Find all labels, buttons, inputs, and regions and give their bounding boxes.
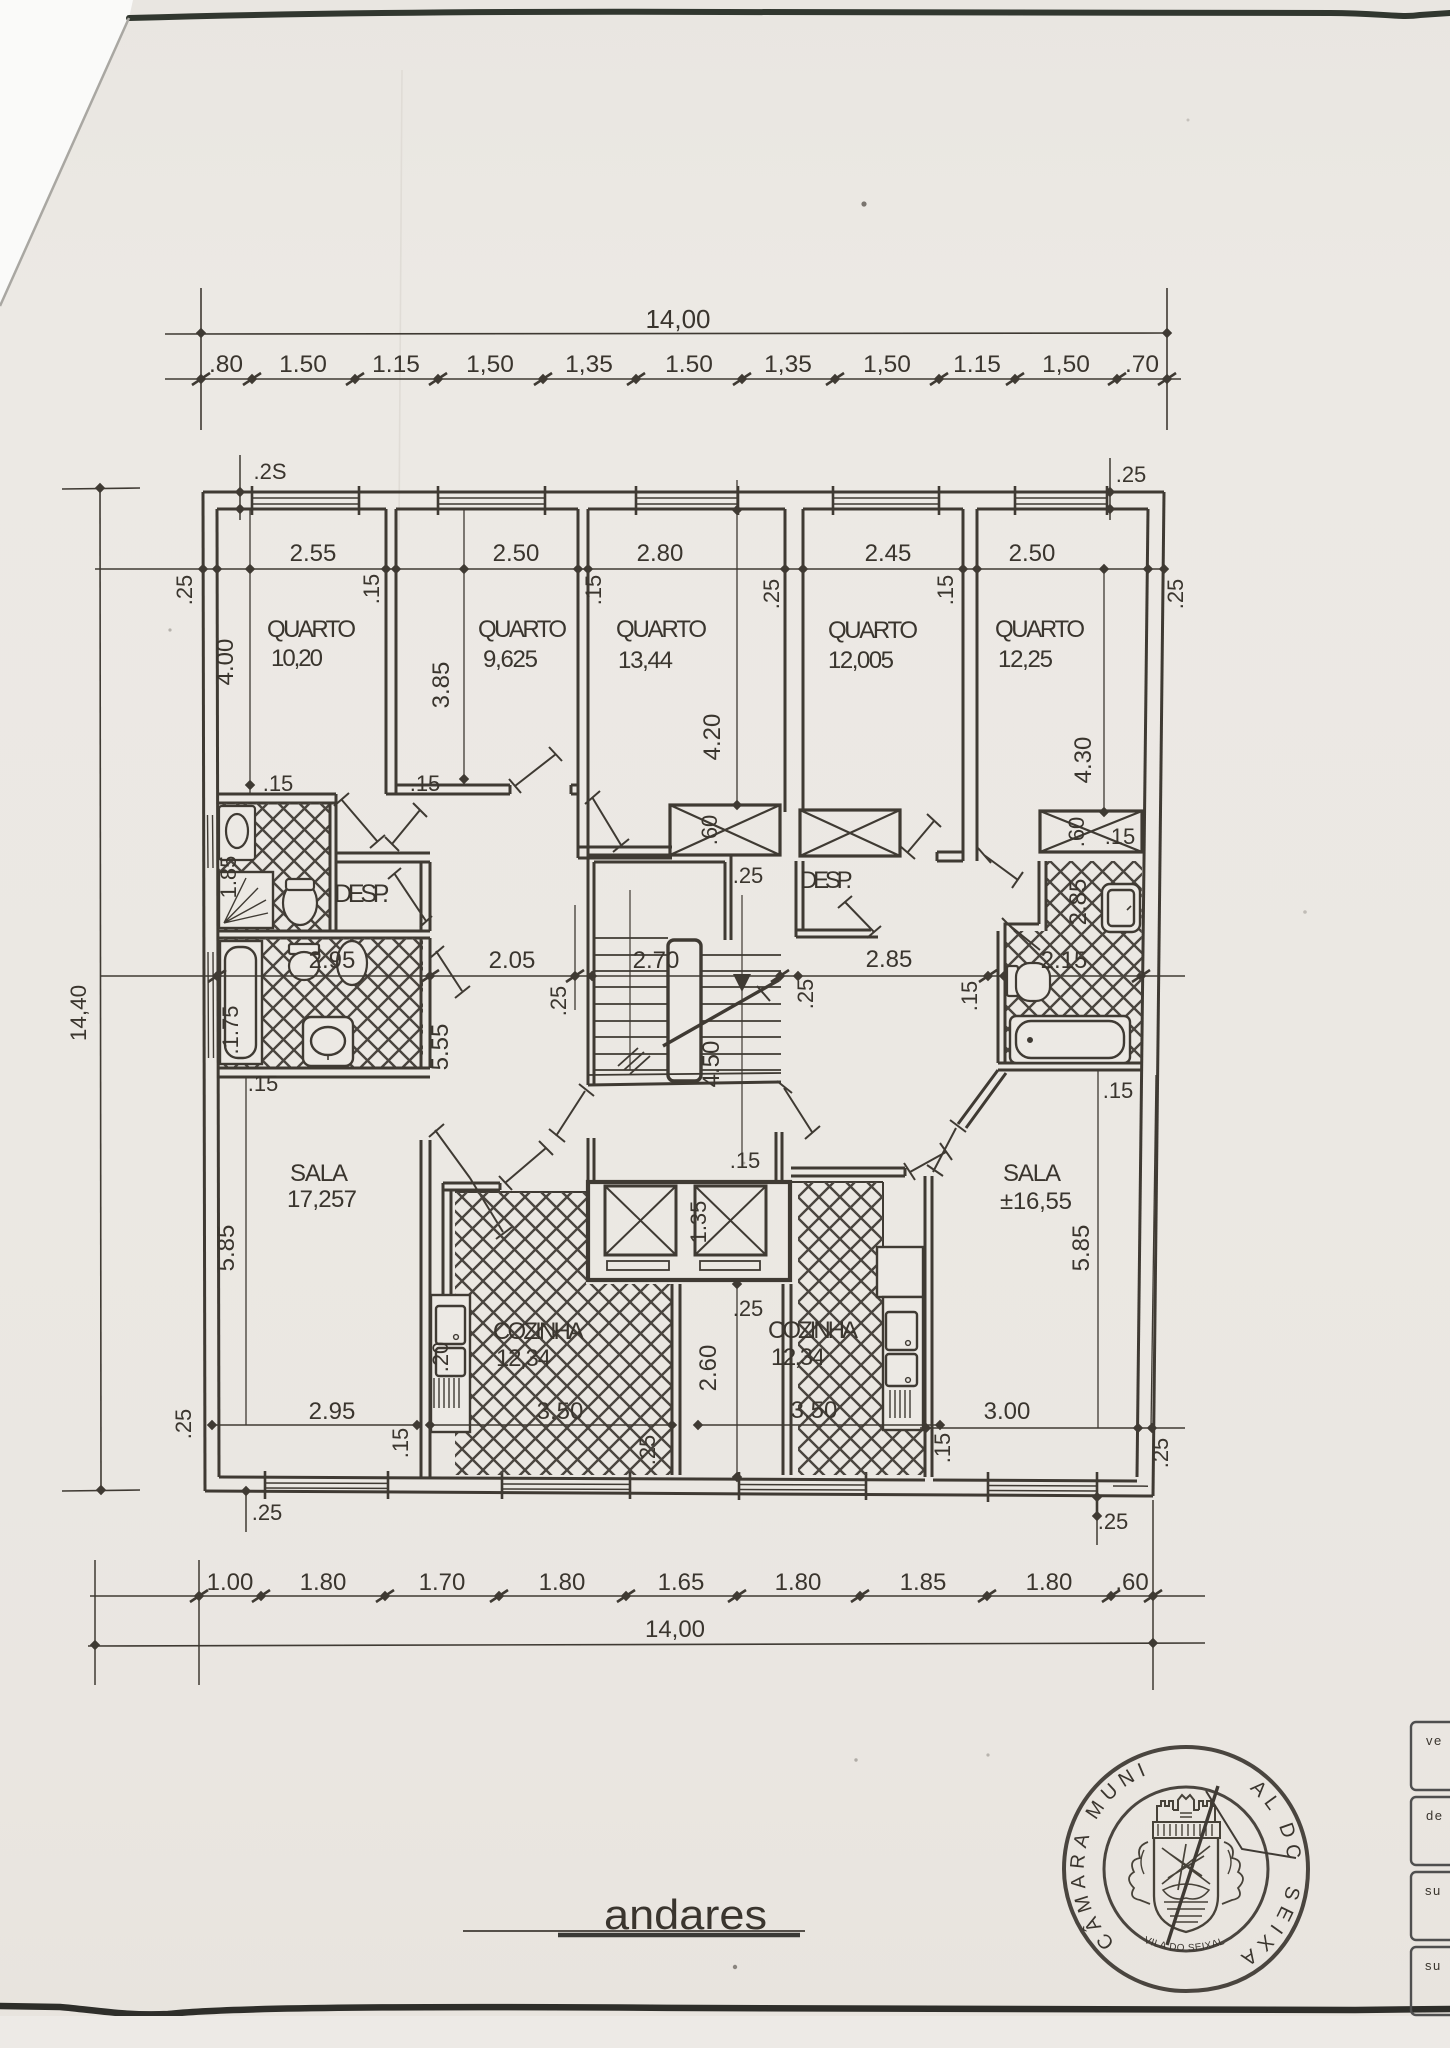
svg-text:1.50: 1.50 <box>279 351 327 378</box>
svg-text:1.65: 1.65 <box>658 1569 705 1596</box>
svg-text:14,00: 14,00 <box>645 1616 705 1643</box>
svg-text:3.50: 3.50 <box>791 1397 838 1424</box>
svg-text:.25: .25 <box>733 863 764 888</box>
svg-text:12,34: 12,34 <box>496 1345 551 1372</box>
svg-text:QUARTO: QUARTO <box>616 616 707 643</box>
svg-text:2.50: 2.50 <box>493 540 540 567</box>
svg-text:.2S: .2S <box>253 459 286 484</box>
svg-text:12,34: 12,34 <box>771 1344 825 1371</box>
svg-text:2.85: 2.85 <box>866 946 913 973</box>
svg-text:.25: .25 <box>1098 1509 1129 1534</box>
svg-text:.15: .15 <box>930 1433 955 1464</box>
svg-text:4.50: 4.50 <box>698 1041 725 1088</box>
svg-text:.25: .25 <box>733 1296 764 1321</box>
svg-text:2.80: 2.80 <box>637 540 684 567</box>
svg-text:12,005: 12,005 <box>828 647 894 674</box>
svg-text:1.80: 1.80 <box>539 1569 586 1596</box>
svg-text:4.00: 4.00 <box>212 639 239 686</box>
svg-text:1.00: 1.00 <box>207 1569 254 1596</box>
svg-text:1,35: 1,35 <box>565 351 613 378</box>
svg-text:9,625: 9,625 <box>483 646 538 673</box>
svg-text:.70: .70 <box>1125 351 1159 378</box>
svg-text:2.95: 2.95 <box>309 947 356 974</box>
svg-text:COZINHA: COZINHA <box>493 1318 584 1345</box>
svg-text:.15: .15 <box>1103 1078 1134 1103</box>
svg-text:.15: .15 <box>248 1071 279 1096</box>
svg-text:de: de <box>1426 1808 1443 1823</box>
svg-text:1.50: 1.50 <box>665 351 713 378</box>
svg-text:1.85: 1.85 <box>216 856 241 899</box>
svg-text:su: su <box>1425 1883 1442 1898</box>
svg-text:.15: .15 <box>581 575 606 606</box>
svg-text:.25: .25 <box>759 579 784 610</box>
svg-text:14,00: 14,00 <box>645 304 710 334</box>
svg-text:QUARTO: QUARTO <box>828 617 918 644</box>
svg-text:2.85: 2.85 <box>1065 879 1092 926</box>
svg-text:10,20: 10,20 <box>271 645 323 672</box>
svg-text:.15: .15 <box>957 981 982 1012</box>
svg-text:1.15: 1.15 <box>953 351 1001 378</box>
svg-text:3.85: 3.85 <box>428 662 455 709</box>
svg-text:.60: .60 <box>697 815 722 846</box>
svg-text:2.50: 2.50 <box>1009 540 1056 567</box>
svg-text:QUARTO: QUARTO <box>995 616 1085 643</box>
svg-text:.15: .15 <box>359 574 384 605</box>
svg-text:.25: .25 <box>171 1409 196 1440</box>
svg-text:.25: .25 <box>546 986 571 1017</box>
svg-text:1.80: 1.80 <box>775 1569 822 1596</box>
svg-text:1,35: 1,35 <box>764 351 812 378</box>
svg-text:5.55: 5.55 <box>427 1024 454 1071</box>
svg-text:.1.75: .1.75 <box>218 1006 243 1055</box>
svg-text:.25: .25 <box>793 979 818 1010</box>
svg-text:1,50: 1,50 <box>1042 351 1090 378</box>
svg-text:.15: .15 <box>933 575 958 606</box>
svg-text:3.50: 3.50 <box>537 1398 584 1425</box>
svg-text:.15: .15 <box>730 1148 761 1173</box>
svg-text:2.05: 2.05 <box>489 947 536 974</box>
svg-text:.25: .25 <box>1148 1438 1173 1469</box>
svg-text:1,50: 1,50 <box>466 351 514 378</box>
svg-text:1.80: 1.80 <box>300 1569 347 1596</box>
svg-text:2.45: 2.45 <box>865 540 912 567</box>
svg-text:13,44: 13,44 <box>618 647 673 674</box>
svg-text:.20: .20 <box>428 1342 453 1373</box>
svg-text:±16,55: ±16,55 <box>1000 1188 1072 1215</box>
svg-text:.25: .25 <box>172 575 197 606</box>
svg-text:.80: .80 <box>209 351 243 378</box>
svg-text:3.00: 3.00 <box>984 1398 1031 1425</box>
svg-text:.15: .15 <box>410 771 441 796</box>
svg-text:su: su <box>1425 1958 1442 1973</box>
svg-text:.60: .60 <box>1115 1569 1148 1596</box>
svg-text:COZINHA: COZINHA <box>768 1317 858 1344</box>
svg-text:.25: .25 <box>635 1435 660 1466</box>
svg-text:1.35: 1.35 <box>686 1201 711 1244</box>
svg-text:DESP.: DESP. <box>334 880 389 908</box>
svg-text:12,25: 12,25 <box>998 646 1053 673</box>
svg-text:5.85: 5.85 <box>1068 1225 1095 1272</box>
svg-text:2.55: 2.55 <box>290 540 337 567</box>
svg-text:DESP.: DESP. <box>800 867 852 894</box>
svg-text:17,257: 17,257 <box>287 1186 357 1213</box>
svg-text:1.15: 1.15 <box>372 351 420 378</box>
svg-text:.25: .25 <box>1163 579 1188 610</box>
svg-text:.15: .15 <box>388 1428 413 1459</box>
svg-text:1.85: 1.85 <box>900 1569 947 1596</box>
svg-text:.15: .15 <box>1105 824 1136 849</box>
svg-text:5.85: 5.85 <box>213 1225 240 1272</box>
svg-text:14,40: 14,40 <box>66 985 91 1041</box>
svg-text:.25: .25 <box>252 1500 283 1525</box>
svg-text:1.80: 1.80 <box>1026 1569 1073 1596</box>
svg-text:4.20: 4.20 <box>699 714 726 761</box>
svg-text:2.15: 2.15 <box>1041 947 1088 974</box>
svg-text:.60: .60 <box>1064 817 1089 848</box>
svg-text:2.60: 2.60 <box>695 1345 722 1392</box>
svg-text:QUARTO: QUARTO <box>478 616 567 643</box>
svg-text:2.70: 2.70 <box>633 947 680 974</box>
svg-text:SALA: SALA <box>1003 1160 1061 1187</box>
svg-text:4.30: 4.30 <box>1070 737 1097 784</box>
svg-text:SALA: SALA <box>290 1160 348 1187</box>
svg-text:.15: .15 <box>263 771 294 796</box>
svg-text:1,50: 1,50 <box>863 351 911 378</box>
svg-text:.25: .25 <box>1116 462 1147 487</box>
svg-text:1.70: 1.70 <box>419 1569 466 1596</box>
svg-text:2.95: 2.95 <box>309 1398 356 1425</box>
svg-text:ve: ve <box>1426 1733 1443 1748</box>
svg-text:QUARTO: QUARTO <box>267 616 356 643</box>
